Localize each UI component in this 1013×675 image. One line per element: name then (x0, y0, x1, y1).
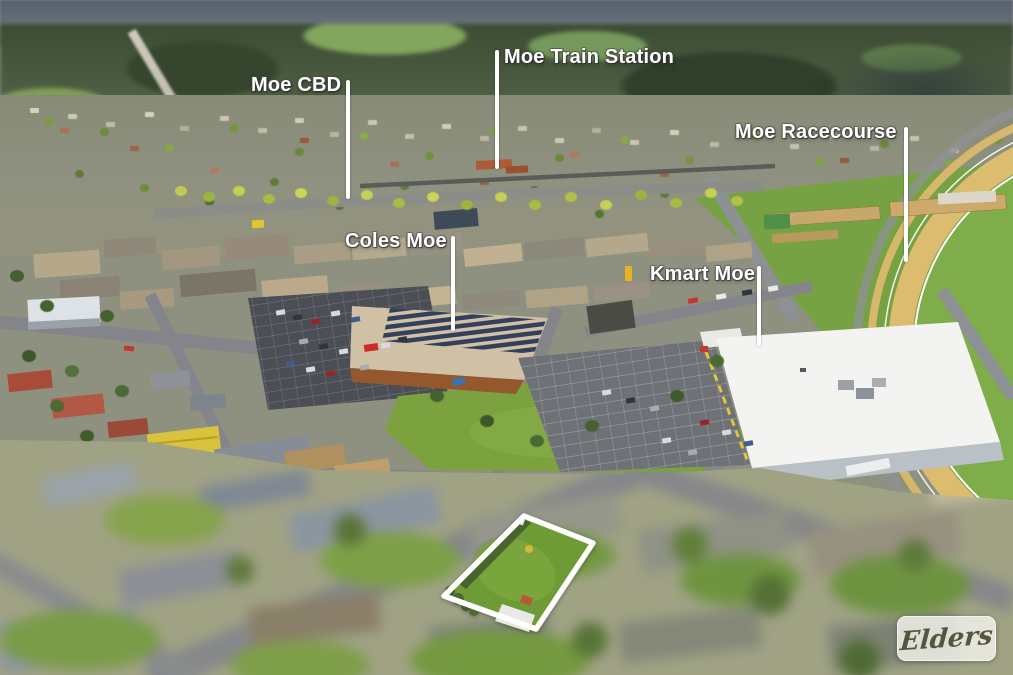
label-moe-train-station: Moe Train Station (504, 46, 674, 69)
label-coles-moe: Coles Moe (345, 230, 447, 253)
pointer-line-coles-moe (451, 236, 455, 331)
pointer-line-moe-train-station (495, 50, 499, 169)
elders-logo-text: Elders (899, 622, 993, 655)
pointer-line-moe-racecourse (904, 127, 908, 262)
aerial-photo: Moe CBD Moe Train Station Moe Racecourse… (0, 0, 1013, 675)
label-moe-cbd: Moe CBD (251, 74, 341, 97)
label-kmart-moe: Kmart Moe (650, 263, 755, 286)
pointer-line-moe-cbd (346, 80, 350, 199)
yard-item (525, 545, 533, 553)
elders-logo-watermark: Elders (897, 616, 996, 661)
property-boundary (0, 0, 1013, 675)
label-moe-racecourse: Moe Racecourse (735, 121, 897, 144)
pointer-line-kmart-moe (757, 266, 761, 346)
